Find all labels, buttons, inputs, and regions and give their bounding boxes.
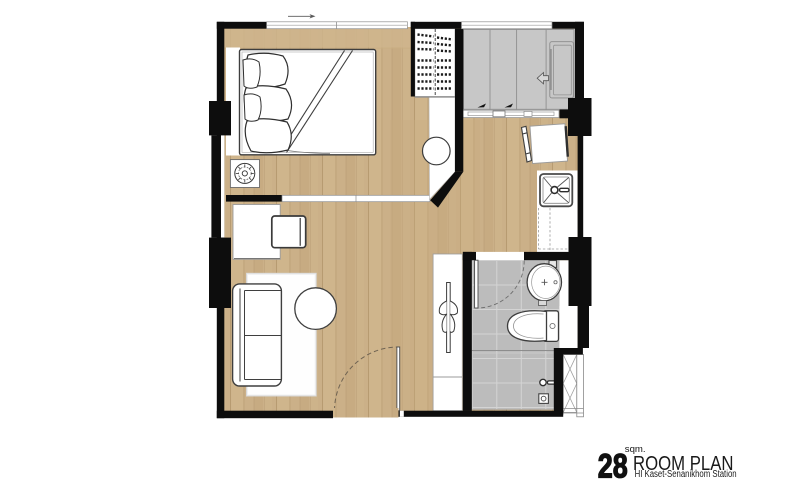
svg-text:28: 28 xyxy=(598,448,628,482)
svg-text:HI Kaset-Senanikhom Station: HI Kaset-Senanikhom Station xyxy=(635,469,737,480)
